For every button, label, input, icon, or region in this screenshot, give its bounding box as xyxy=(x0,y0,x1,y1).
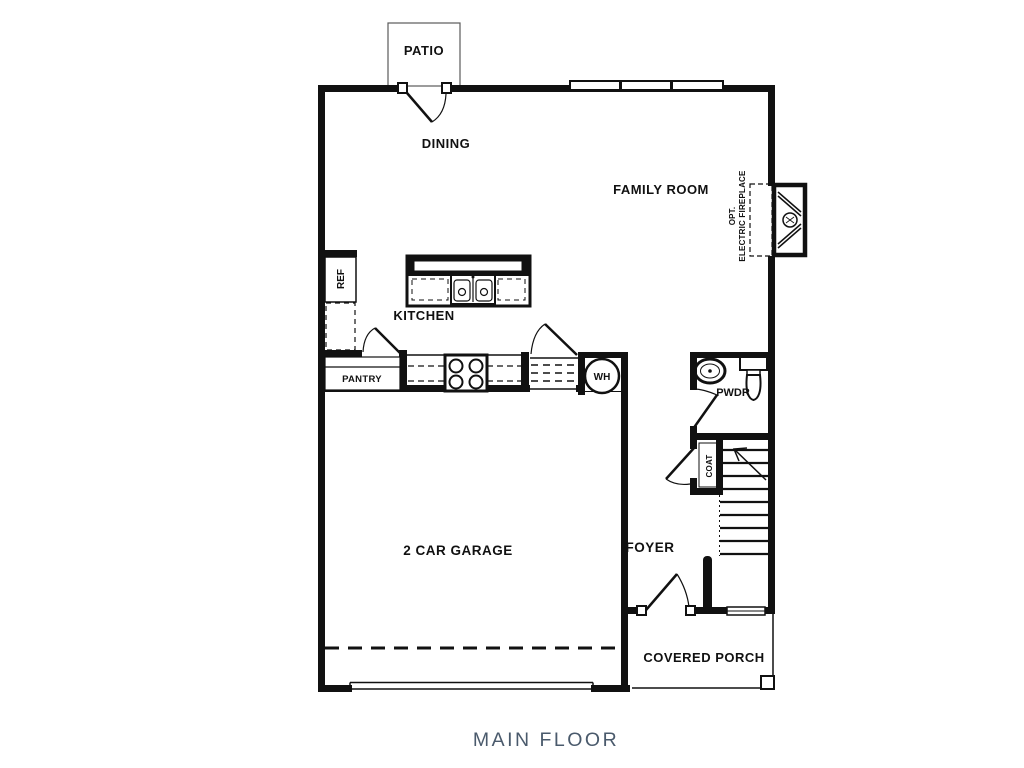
paper-background xyxy=(0,0,1024,768)
garage-label: 2 CAR GARAGE xyxy=(403,543,513,558)
window-icon xyxy=(570,81,620,90)
kitchen-label: KITCHEN xyxy=(393,308,454,323)
fireplace-opt-label: OPT. xyxy=(728,207,737,226)
powder-label: PWDR xyxy=(716,387,750,399)
covered-porch-label: COVERED PORCH xyxy=(643,650,764,665)
refrigerator-label: REF xyxy=(336,269,347,289)
page-title: MAIN FLOOR xyxy=(473,729,619,751)
stove-icon xyxy=(445,355,487,391)
coat-label: COAT xyxy=(705,455,714,478)
pantry-label: PANTRY xyxy=(342,374,382,385)
patio-label: PATIO xyxy=(404,43,444,58)
floor-plan-svg: PATIO DINING FAMILY ROOM KITCHEN PANTRY … xyxy=(0,0,1024,768)
stair-rail xyxy=(703,556,712,612)
water-heater-label: WH xyxy=(594,372,611,383)
dining-label: DINING xyxy=(422,136,471,151)
floor-plan-page: PATIO DINING FAMILY ROOM KITCHEN PANTRY … xyxy=(0,0,1024,768)
window-icon xyxy=(621,81,671,90)
window-icon xyxy=(672,81,723,90)
fireplace-name-label: ELECTRIC FIREPLACE xyxy=(738,170,747,262)
porch-post xyxy=(761,676,774,689)
double-sink-icon xyxy=(451,275,495,304)
family-room-label: FAMILY ROOM xyxy=(613,182,709,197)
kitchen-island xyxy=(407,256,530,306)
foyer-label: FOYER xyxy=(625,540,674,555)
